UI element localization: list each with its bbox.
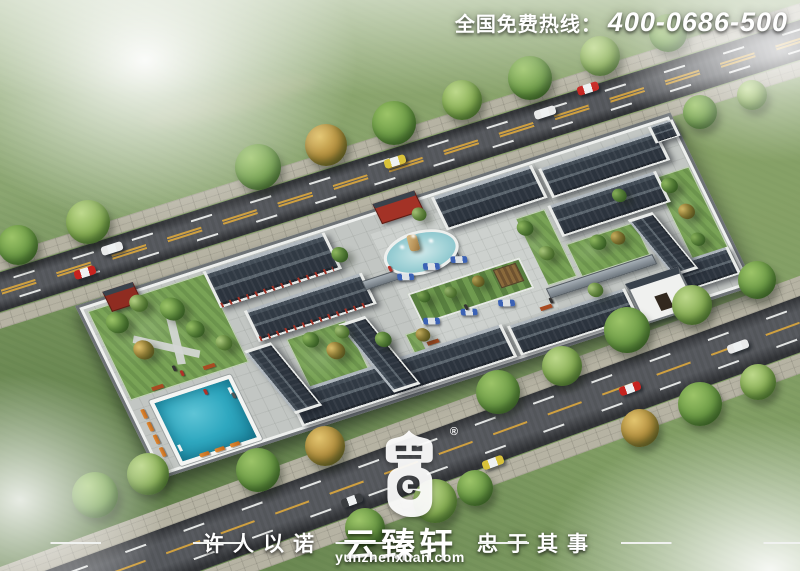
tree (738, 261, 776, 299)
pool-lounger (152, 434, 160, 444)
divider-dash: — (0, 542, 800, 544)
gate-doorway (654, 292, 673, 311)
tree (580, 36, 620, 76)
pool-ladder (177, 444, 183, 451)
tree (740, 364, 776, 400)
tree (604, 307, 650, 353)
tree (457, 470, 493, 506)
tree (621, 409, 659, 447)
tree (127, 453, 169, 495)
tree (737, 80, 767, 110)
tree (66, 200, 110, 244)
aerial-architectural-render: 全国免费热线： 400-0686-500 ® 许人以诺 — 云臻轩 — 忠于其事… (0, 0, 800, 571)
tree (305, 426, 345, 466)
tree (683, 95, 717, 129)
tree (678, 382, 722, 426)
registered-mark: ® (450, 426, 458, 438)
hotline-label: 全国免费热线： (455, 8, 602, 37)
cloud-seal-logo: ® (364, 429, 454, 523)
tree (542, 346, 582, 386)
pool-lounger (146, 421, 154, 431)
tree (672, 285, 712, 325)
tree (236, 448, 280, 492)
cloud-seal-logo-glyph (364, 429, 454, 523)
website-url: yunzhenxuan.com (0, 549, 800, 565)
tree (476, 370, 520, 414)
hotline-number: 400-0686-500 (608, 7, 788, 38)
parked-car (423, 318, 441, 325)
parked-car (450, 256, 468, 263)
pool-lounger (159, 447, 167, 457)
pool-lounger (140, 409, 148, 419)
tree (72, 472, 118, 518)
tree (442, 80, 482, 120)
tree (508, 56, 552, 100)
tree (305, 124, 347, 166)
parked-car (460, 309, 478, 316)
parked-car (423, 263, 441, 270)
parked-car (498, 300, 516, 307)
hotline-banner: 全国免费热线： 400-0686-500 (455, 7, 788, 38)
tree (372, 101, 416, 145)
tree (235, 144, 281, 190)
parked-car (397, 273, 415, 280)
